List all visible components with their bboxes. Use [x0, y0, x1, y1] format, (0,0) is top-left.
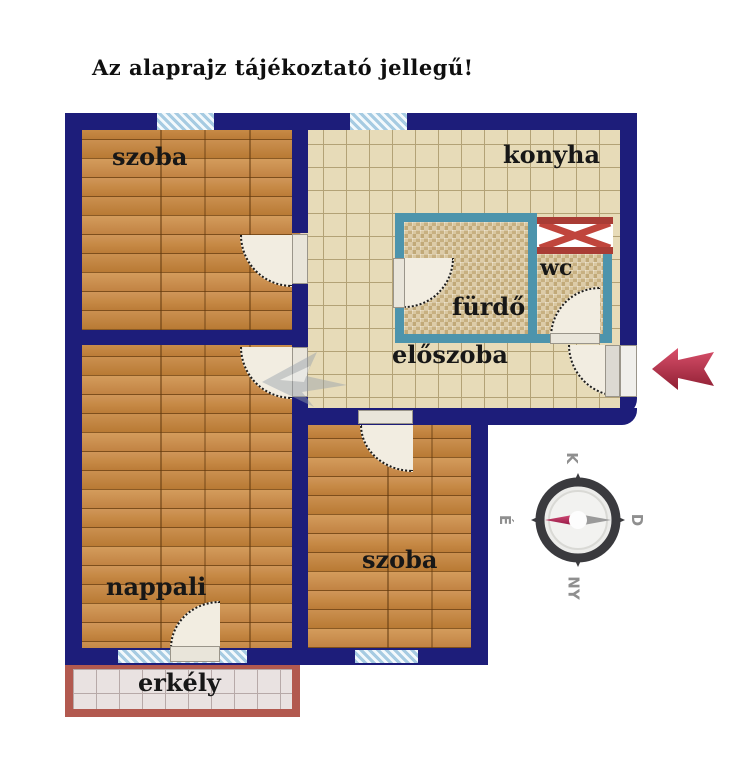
- label-balcony: erkély: [138, 668, 221, 697]
- compass-east-label: K: [563, 452, 581, 464]
- label-wc: wc: [540, 255, 572, 281]
- label-living: nappali: [106, 572, 206, 601]
- wall-center-upper: [292, 113, 308, 233]
- wall-center-lower: [292, 397, 308, 665]
- label-hall: előszoba: [392, 340, 508, 369]
- label-room-bottom: szoba: [362, 545, 437, 574]
- wc-wall-right: [603, 253, 612, 343]
- entrance-wall-gap: [620, 345, 637, 397]
- label-kitchen: konyha: [503, 140, 600, 169]
- compass-west-label: NY: [565, 576, 583, 599]
- window-room-bottom: [355, 650, 418, 663]
- label-bathroom: fürdő: [452, 292, 525, 321]
- room-top-floor: [73, 121, 303, 341]
- bath-wall-left-upper: [395, 213, 404, 258]
- door-leaf-room-bottom: [358, 410, 413, 424]
- door-leaf-bathroom: [393, 258, 405, 308]
- watermark: [262, 352, 347, 407]
- page-title: Az alaprajz tájékoztató jellegű!: [92, 55, 473, 80]
- door-leaf-room-top: [292, 234, 308, 284]
- door-leaf-wc: [550, 333, 600, 344]
- wall-room-bottom-right: [471, 408, 488, 665]
- compass-north-label: É: [496, 515, 514, 525]
- floor-plan: Az alaprajz tájékoztató jellegű!: [0, 0, 756, 768]
- wall-bottom-top-block: [292, 408, 637, 425]
- wall-left: [65, 113, 82, 665]
- window-room-top: [157, 113, 214, 130]
- bath-wall-top: [395, 213, 537, 222]
- label-room-top: szoba: [112, 142, 187, 171]
- entrance-arrow-icon: [652, 348, 714, 390]
- window-kitchen: [350, 113, 407, 130]
- door-leaf-entrance: [605, 345, 620, 397]
- vent-x-icon: [537, 217, 613, 254]
- wall-room-top-living: [65, 330, 308, 345]
- bath-wall-right: [528, 213, 537, 343]
- door-leaf-balcony: [170, 646, 220, 662]
- compass-south-label: D: [628, 514, 646, 526]
